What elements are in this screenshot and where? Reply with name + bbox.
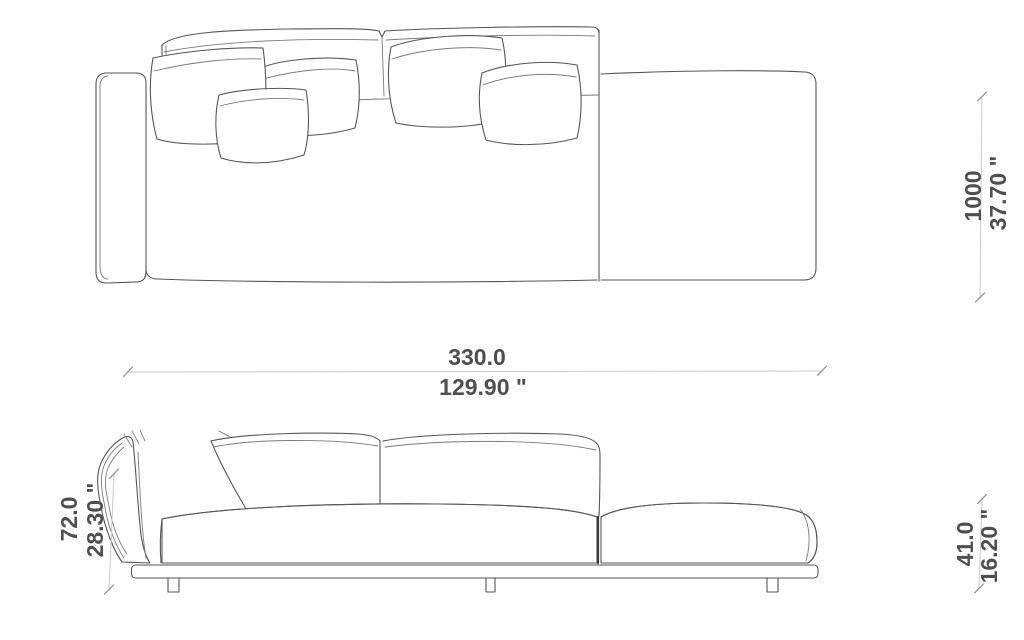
backrest-left-top: [162, 29, 379, 45]
back-cushion-left-inner: [214, 440, 378, 447]
sofa-top-view: [96, 27, 816, 283]
base-rail: [132, 565, 819, 578]
back-cushion-right-edge: [599, 456, 600, 516]
back-height-cm-label: 72.0: [56, 497, 82, 542]
back-cushion-right-inner: [385, 441, 596, 450]
chaise-plan: [601, 71, 816, 280]
depth-inch-label: 37.70 ": [985, 156, 1011, 231]
backrest-seam-notch: [379, 31, 385, 37]
sketch-stroke: [140, 430, 145, 441]
leg-left: [168, 578, 179, 592]
leg-middle: [486, 578, 495, 592]
seat-cushion-main: [162, 504, 597, 563]
sofa-dimension-drawing: 330.0 129.90 " 1000 37.70 " 72.0 28.30 "…: [0, 0, 1024, 640]
seat-height-inch-label: 16.20 ": [976, 509, 1002, 584]
sketch-stroke: [219, 431, 230, 437]
seat-cushions-side: [160, 503, 817, 563]
body-front-edge: [146, 270, 597, 282]
back-cushion-left-top: [211, 433, 380, 441]
back-height-inch-label: 28.30 ": [82, 483, 108, 558]
backrest-right-top: [385, 27, 599, 34]
dimension-seat-height: 41.0 16.20 ": [952, 495, 1002, 594]
sofa-side-view: [98, 430, 818, 592]
chaise-cushion-fill: [601, 503, 817, 563]
backrest-seam-vertical: [382, 37, 384, 96]
width-cm-label: 330.0: [448, 344, 506, 370]
base-side: [132, 565, 819, 592]
armrest-plan: [96, 73, 146, 283]
dimension-depth: 1000 37.70 ": [960, 92, 1011, 302]
dimension-width-line: [128, 371, 822, 372]
backrest-left-inner: [164, 39, 378, 52]
back-cushions-side: [211, 431, 600, 516]
armrest-outline: [96, 73, 146, 283]
leg-right: [767, 578, 778, 592]
chaise-outline: [601, 71, 816, 280]
depth-mm-label: 1000: [960, 170, 986, 221]
back-cushion-right-top: [383, 433, 600, 456]
seat-height-cm-label: 41.0: [952, 522, 978, 567]
pillow-2-outline: [216, 88, 309, 162]
back-cushion-left-edge: [211, 441, 249, 514]
dimension-width: 330.0 129.90 ": [124, 344, 827, 400]
width-inch-label: 129.90 ": [439, 374, 527, 400]
